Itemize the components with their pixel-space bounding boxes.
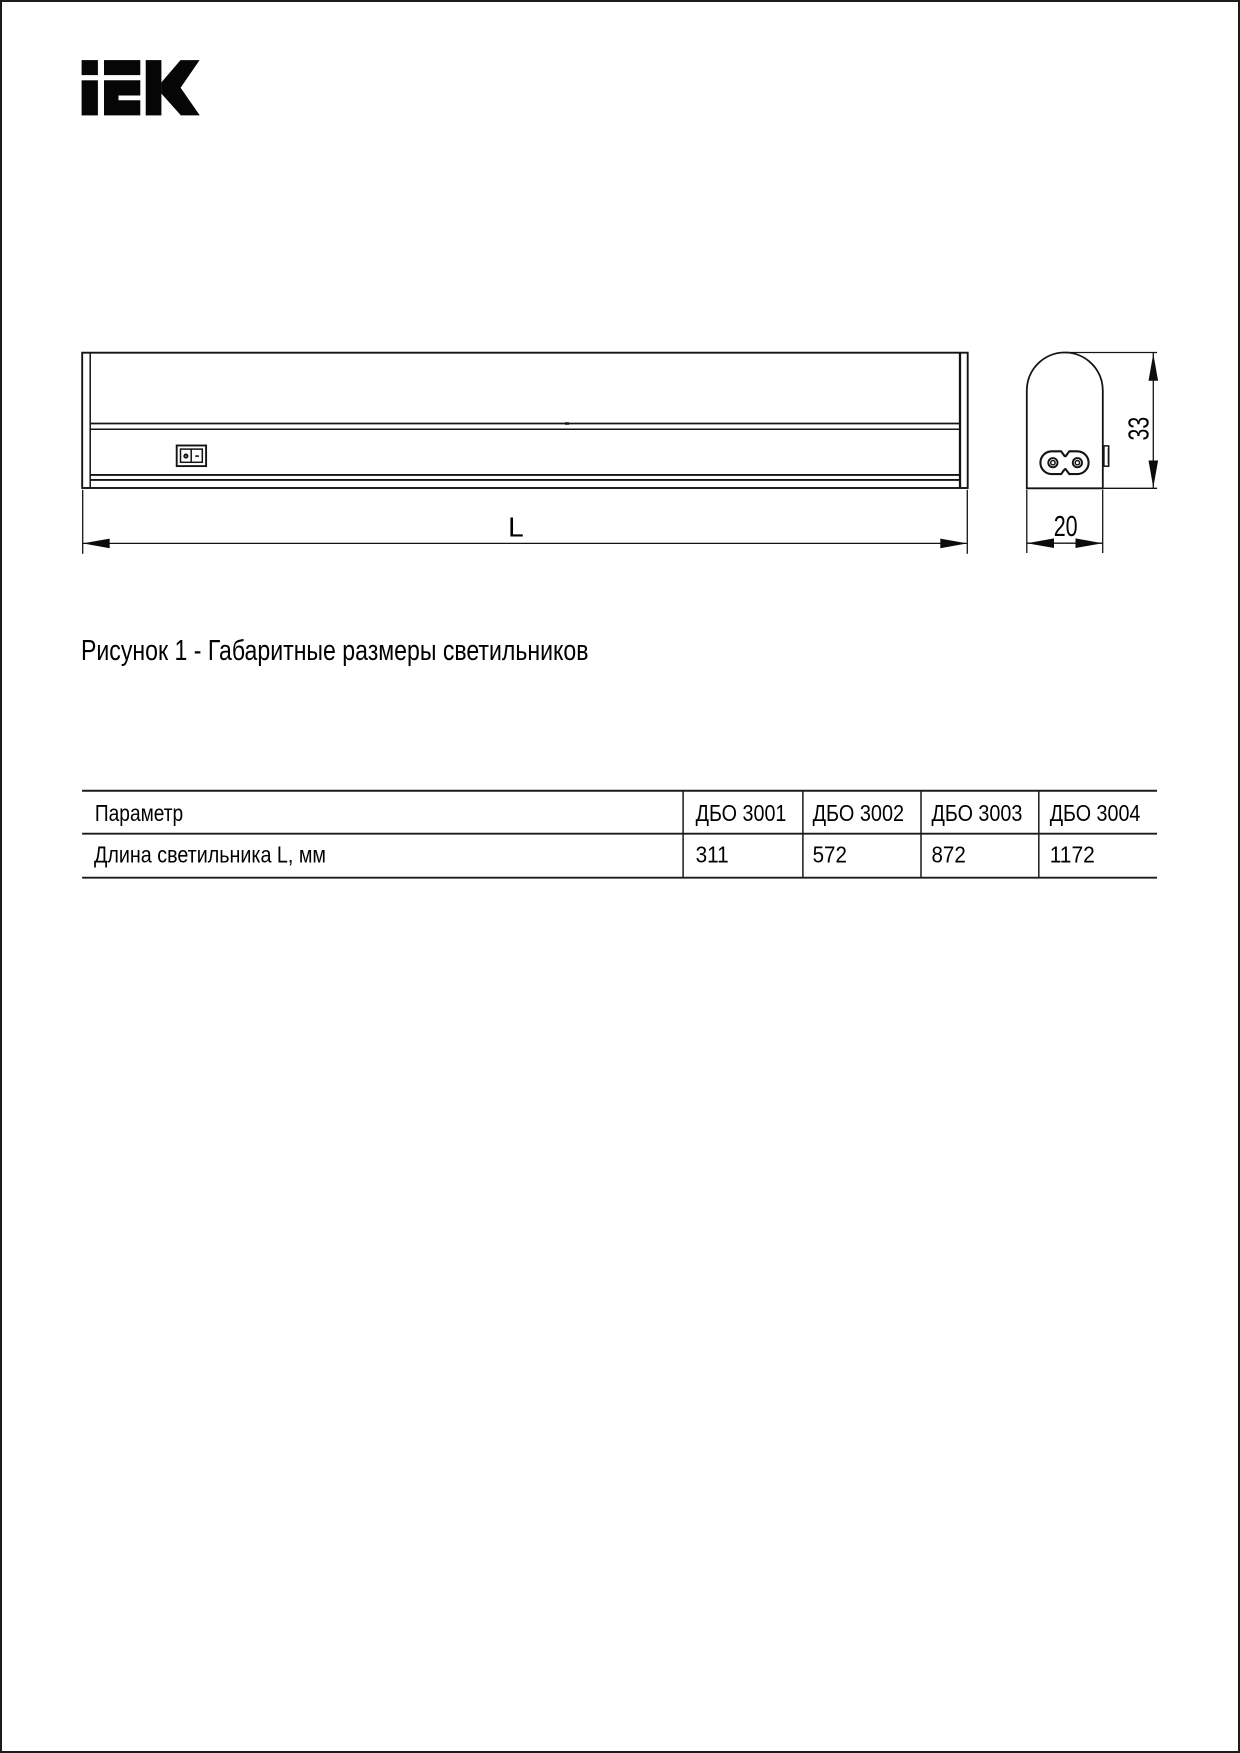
svg-text:ДБО 3004: ДБО 3004: [1050, 800, 1141, 826]
svg-text:Рисунок 1 - Габаритные размеры: Рисунок 1 - Габаритные размеры светильни…: [81, 635, 589, 667]
svg-text:33: 33: [1123, 417, 1155, 441]
svg-text:Параметр: Параметр: [95, 800, 183, 826]
svg-text:1172: 1172: [1050, 842, 1095, 868]
svg-text:20: 20: [1054, 511, 1078, 543]
svg-text:ДБО 3002: ДБО 3002: [813, 800, 905, 826]
svg-text:872: 872: [932, 842, 966, 868]
svg-text:ДБО 3001: ДБО 3001: [696, 800, 787, 826]
svg-text:ДБО 3003: ДБО 3003: [932, 800, 1023, 826]
svg-text:L: L: [508, 511, 524, 542]
svg-text:311: 311: [696, 842, 729, 868]
svg-text:572: 572: [813, 842, 847, 868]
svg-text:Длина светильника L, мм: Длина светильника L, мм: [94, 842, 326, 868]
